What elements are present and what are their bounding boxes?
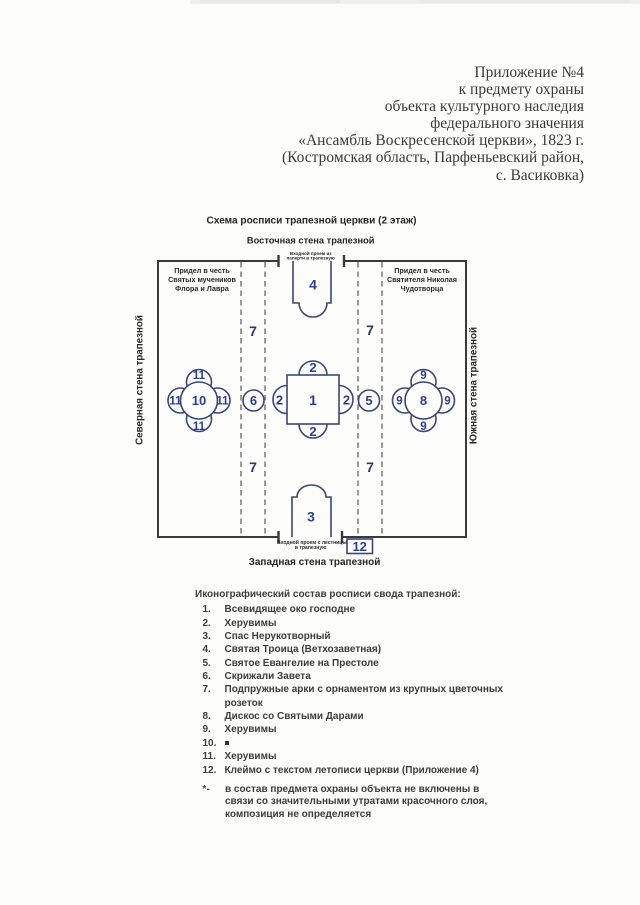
svg-text:12: 12 (352, 539, 366, 554)
svg-text:4: 4 (309, 277, 317, 293)
svg-text:2: 2 (276, 393, 283, 408)
svg-text:паперти в трапезную: паперти в трапезную (287, 256, 335, 261)
svg-text:11: 11 (193, 421, 206, 433)
svg-text:Придел в честь: Придел в честь (174, 266, 230, 275)
svg-text:2: 2 (309, 424, 316, 439)
svg-text:7: 7 (366, 322, 374, 338)
svg-text:9: 9 (396, 396, 402, 408)
svg-text:2: 2 (309, 360, 316, 375)
svg-text:Придел в честь: Придел в честь (394, 266, 450, 275)
svg-text:Святителя Николая: Святителя Николая (387, 275, 457, 284)
svg-text:9: 9 (420, 421, 426, 433)
svg-text:Западная стена трапезной: Западная стена трапезной (249, 557, 381, 568)
svg-text:6: 6 (250, 393, 257, 408)
svg-text:2: 2 (343, 393, 350, 408)
svg-text:10: 10 (192, 393, 206, 408)
svg-text:Святых мучеников: Святых мучеников (168, 275, 236, 284)
svg-text:7: 7 (249, 323, 257, 339)
svg-text:11: 11 (216, 396, 229, 408)
svg-text:1: 1 (309, 392, 317, 408)
svg-text:Чудотворца: Чудотворца (401, 284, 445, 293)
svg-text:8: 8 (420, 393, 427, 408)
svg-text:11: 11 (169, 396, 182, 408)
svg-text:Схема росписи трапезной церкви: Схема росписи трапезной церкви (2 этаж) (207, 216, 417, 227)
svg-text:Восточная стена трапезной: Восточная стена трапезной (247, 236, 375, 246)
svg-text:Южная стена трапезной: Южная стена трапезной (469, 327, 480, 444)
svg-text:в трапезную: в трапезную (295, 545, 327, 551)
svg-text:3: 3 (307, 509, 315, 525)
svg-text:Северная стена трапезной: Северная стена трапезной (135, 315, 146, 445)
svg-text:9: 9 (444, 396, 450, 408)
svg-text:Флора и Лавра: Флора и Лавра (175, 284, 230, 293)
svg-text:5: 5 (365, 393, 372, 408)
svg-text:7: 7 (249, 459, 257, 475)
svg-text:7: 7 (366, 459, 374, 475)
svg-text:9: 9 (420, 370, 426, 382)
svg-text:11: 11 (193, 370, 206, 382)
